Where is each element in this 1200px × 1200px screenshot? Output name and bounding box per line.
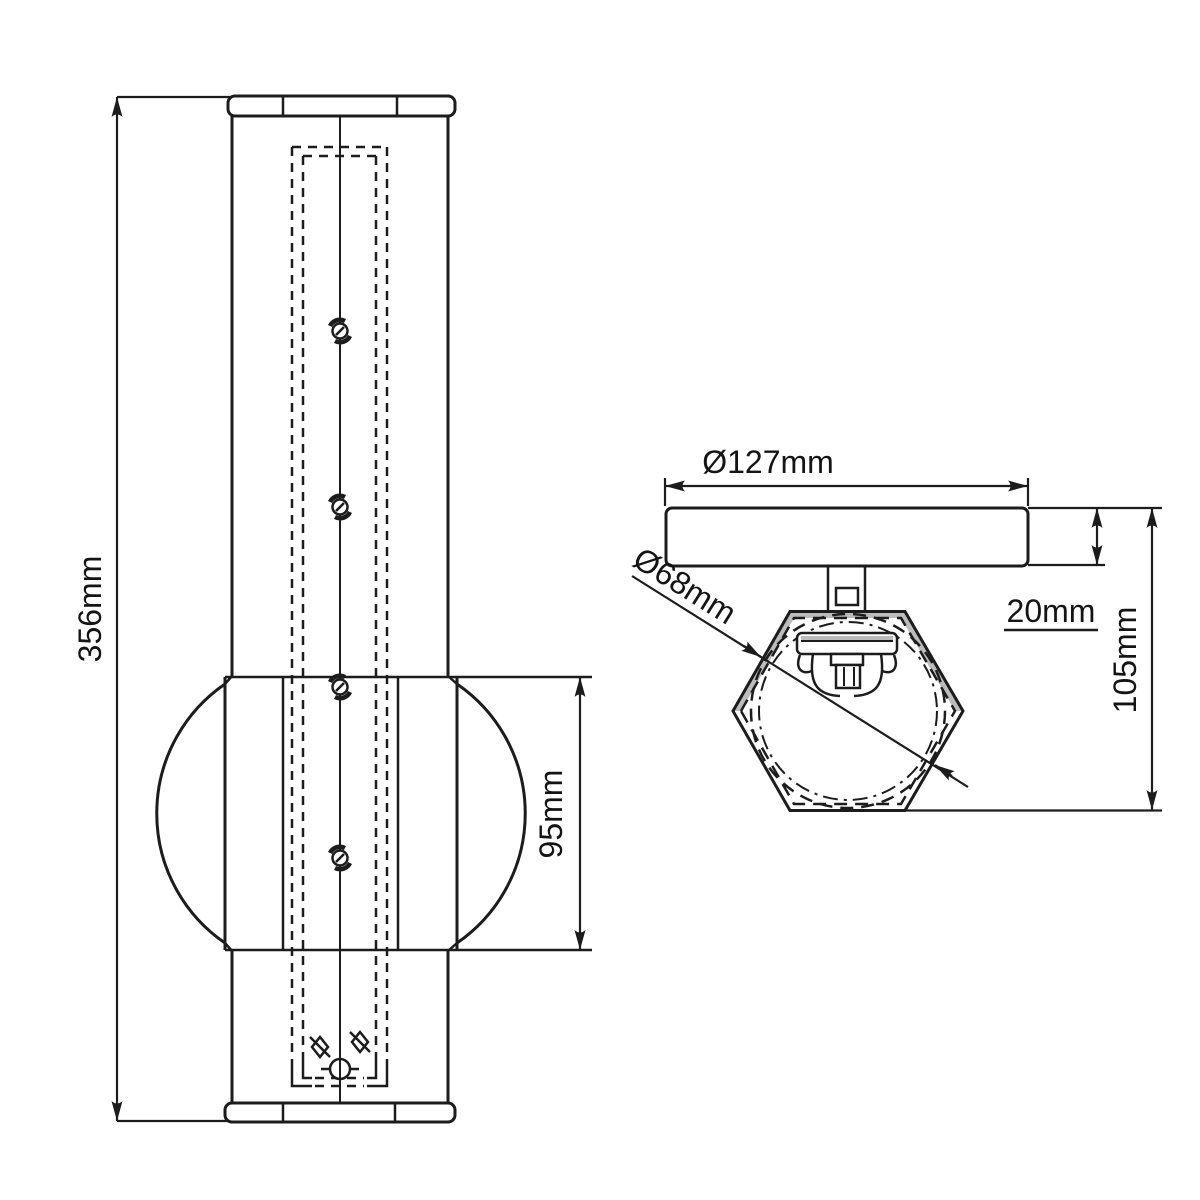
clip-hook-right (882, 655, 896, 672)
front-dimensions: 356mm 95mm (72, 97, 580, 1121)
dimension-label-127: Ø127mm (702, 444, 834, 480)
arrow-carrier-68-lower (935, 765, 952, 776)
screw-icon (330, 320, 350, 342)
top-cap-body (228, 96, 455, 116)
terminal-screw-icon (350, 1032, 370, 1052)
dimension-label-20: 20mm (1007, 593, 1096, 629)
terminal-screw-icon (310, 1037, 330, 1057)
dimension-line-68 (632, 576, 968, 787)
dimension-label-105: 105mm (1107, 607, 1143, 714)
front-view (157, 96, 592, 1122)
bottom-cap-body (225, 1103, 455, 1122)
dimension-overall-height: 356mm (72, 97, 230, 1121)
screw-icon (330, 496, 350, 518)
dimension-label-95: 95mm (533, 770, 569, 859)
globe-right-arc (457, 684, 525, 943)
dimension-plate-diameter: Ø127mm (665, 444, 1028, 506)
arrow-carrier-68-upper (744, 646, 761, 657)
neck-block (836, 588, 858, 605)
side-view (666, 508, 1162, 811)
drawing-page: 356mm 95mm (0, 0, 1200, 1200)
screw-icon (330, 847, 350, 869)
screw-icon (330, 676, 350, 698)
top-cap (228, 96, 455, 116)
socket-assembly (797, 633, 897, 696)
dimension-globe-height: 95mm (533, 677, 580, 950)
socket-collar (831, 654, 863, 665)
dimension-label-356: 356mm (72, 556, 108, 663)
inner-tube-corner-hook-left-inner (303, 1060, 312, 1078)
globe-left-arc (157, 684, 225, 943)
socket-body (836, 665, 860, 688)
wall-plate (666, 508, 1028, 566)
bottom-cap (225, 1103, 455, 1122)
clip-hook-left (798, 655, 812, 672)
inner-tube-corner-hook-right-inner (367, 1060, 376, 1078)
drawing-canvas: 356mm 95mm (0, 0, 1200, 1200)
